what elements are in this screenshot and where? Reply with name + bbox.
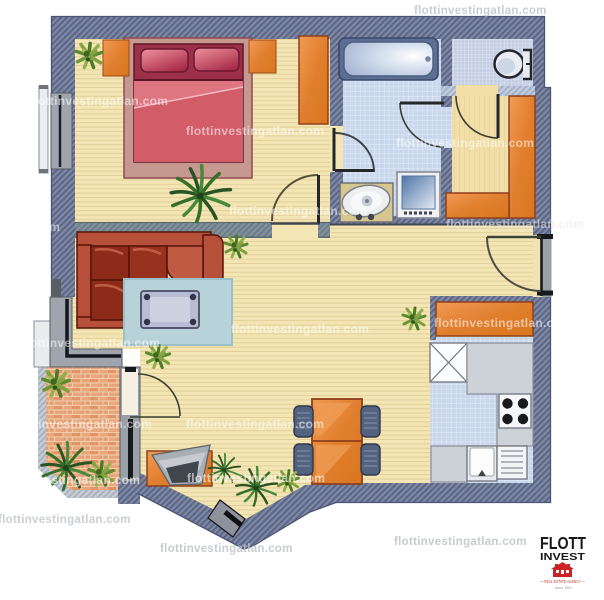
svg-text:INVEST: INVEST [540, 551, 586, 563]
svg-text:flottinvestingatlan.com: flottinvestingatlan.com [446, 217, 584, 231]
svg-text:flottinvestingatlan.com: flottinvestingatlan.com [187, 471, 325, 485]
svg-text:flottinvestingatlan.com: flottinvestingatlan.com [160, 543, 293, 555]
svg-text:FLOTT: FLOTT [540, 533, 586, 553]
svg-text:flottinvestingatlan.com: flottinvestingatlan.com [394, 536, 527, 548]
svg-text:flottinvestingatlan.com: flottinvestingatlan.com [30, 94, 168, 108]
svg-text:flottinvestingatlan.com: flottinvestingatlan.com [231, 322, 369, 336]
svg-text:since 1991: since 1991 [555, 586, 572, 590]
svg-text:flottinvestingatlan.com: flottinvestingatlan.com [186, 124, 324, 138]
svg-text:flottinvestingatlan.com: flottinvestingatlan.com [396, 136, 534, 150]
svg-text:flottinvestingatlan.com: flottinvestingatlan.com [2, 473, 140, 487]
svg-text:flottinvestingatlan.com: flottinvestingatlan.com [0, 514, 131, 526]
svg-text:— REAL ESTATE AGENCY —: — REAL ESTATE AGENCY — [540, 579, 585, 584]
svg-text:flottinvestingatlan.com: flottinvestingatlan.com [14, 417, 152, 431]
svg-text:flottinvestingatlan.com: flottinvestingatlan.com [186, 417, 324, 431]
svg-text:flottinvestingatlan.com: flottinvestingatlan.com [22, 336, 160, 350]
svg-text:flottinvestingatlan.com: flottinvestingatlan.com [0, 220, 60, 234]
svg-text:flottinvestingatlan.com: flottinvestingatlan.com [414, 5, 547, 17]
svg-text:flottinvestingatlan.com: flottinvestingatlan.com [229, 204, 367, 218]
svg-text:flottinvestingatlan.com: flottinvestingatlan.com [434, 316, 572, 330]
